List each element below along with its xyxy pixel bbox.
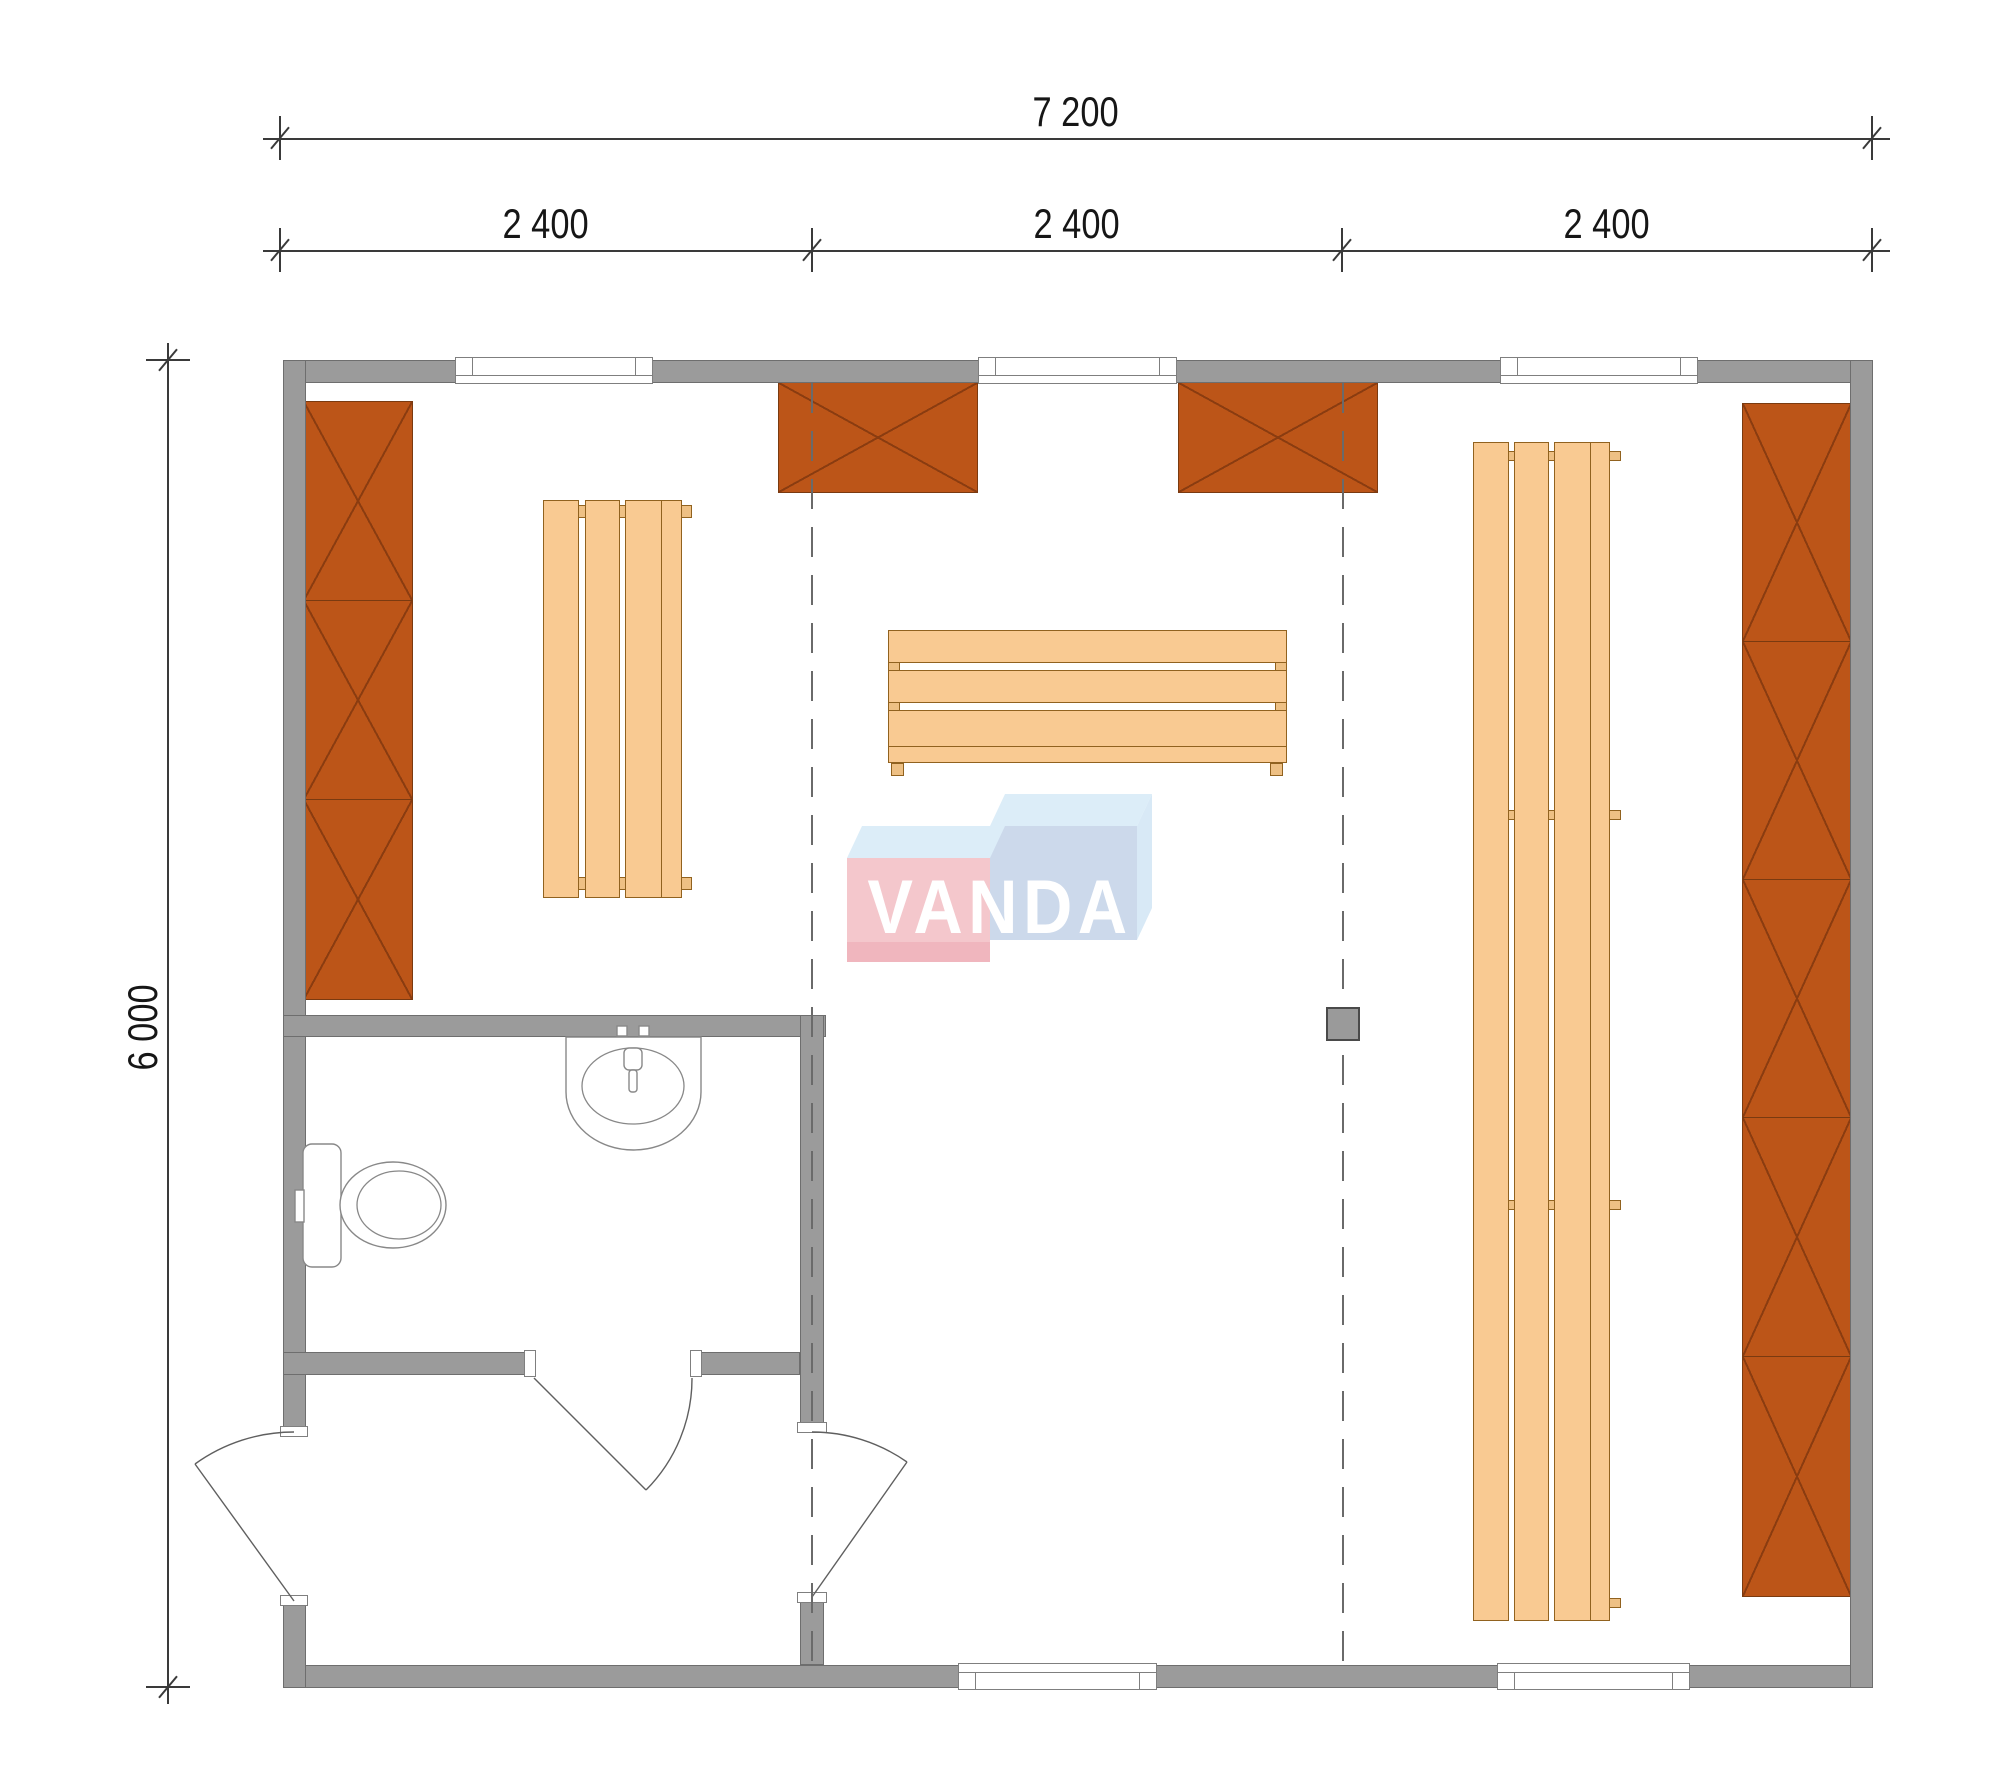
dimension-bay-2: 2 400: [977, 200, 1177, 248]
bathroom-door-opening: [535, 1351, 690, 1376]
storage-unit-left-panel: [303, 600, 413, 800]
storage-column-right-panel: [1742, 1117, 1852, 1357]
door-jamb: [524, 1350, 536, 1377]
bench-center-rail: [888, 746, 1287, 763]
logo-pink-top: [847, 826, 1005, 858]
module-grid-line-1: [811, 383, 813, 1665]
door-jamb: [690, 1350, 702, 1377]
logo-blue-top: [990, 794, 1152, 826]
bench-center-slat: [888, 710, 1287, 747]
bench-center-slat: [888, 670, 1287, 703]
sauna-stove: [1326, 1007, 1360, 1041]
door-jamb: [280, 1595, 308, 1606]
vanda-watermark-text: VANDA: [861, 868, 1140, 948]
ceiling-box-1: [778, 382, 978, 493]
dimension-height: 6 000: [119, 952, 167, 1102]
bench-left-slat: [543, 500, 579, 898]
bench-right-slat: [1554, 442, 1591, 1621]
bathroom-door-swing: [646, 1378, 692, 1490]
bench-right-slat: [1590, 442, 1610, 1621]
storage-unit-left-panel: [303, 401, 413, 601]
wall-right: [1850, 360, 1873, 1688]
bathroom-door-leaf: [534, 1378, 646, 1490]
main-room-door-swing: [812, 1432, 907, 1462]
window-top-right: [1500, 357, 1698, 384]
bench-center-leg: [891, 763, 904, 776]
entrance-door-leaf: [195, 1464, 294, 1601]
storage-column-right-panel: [1742, 403, 1852, 642]
bench-right-slat: [1514, 442, 1549, 1621]
window-top-left: [455, 357, 653, 384]
wall-bathroom-top: [283, 1015, 826, 1037]
window-bottom-center: [958, 1663, 1157, 1690]
storage-column-right-panel: [1742, 641, 1852, 880]
entrance-door-opening: [282, 1437, 307, 1595]
door-jamb: [280, 1426, 308, 1437]
bench-center-slat: [888, 630, 1287, 663]
window-bottom-right: [1497, 1663, 1690, 1690]
dimension-line-total: [263, 138, 1890, 140]
storage-column-right-panel: [1742, 1356, 1852, 1597]
dimension-line-height: [167, 343, 169, 1704]
dimension-bay-1: 2 400: [446, 200, 646, 248]
bench-right-slat: [1473, 442, 1509, 1621]
sink-faucet: [624, 1048, 642, 1070]
floor-plan: 7 200 2 400 2 400 2 400 6 000: [0, 0, 2000, 1786]
toilet-bowl-inner: [357, 1171, 441, 1239]
bench-left-slat: [625, 500, 662, 898]
storage-unit-left-panel: [303, 799, 413, 1000]
bench-left-slat: [585, 500, 620, 898]
window-top-center: [978, 357, 1177, 384]
dimension-line-bays: [263, 250, 1890, 252]
toilet-bowl: [340, 1162, 446, 1248]
main-room-door-leaf: [812, 1462, 907, 1597]
dimension-bay-3: 2 400: [1507, 200, 1707, 248]
toilet-cistern: [303, 1144, 341, 1267]
sink-faucet-spout: [629, 1070, 637, 1092]
sink-basin: [566, 1037, 701, 1150]
sink-basin-inner: [582, 1048, 684, 1124]
dimension-total-width: 7 200: [976, 88, 1176, 136]
bench-center-leg: [1270, 763, 1283, 776]
bench-left-slat: [661, 500, 682, 898]
storage-column-right-panel: [1742, 879, 1852, 1118]
ceiling-box-2: [1178, 382, 1378, 493]
